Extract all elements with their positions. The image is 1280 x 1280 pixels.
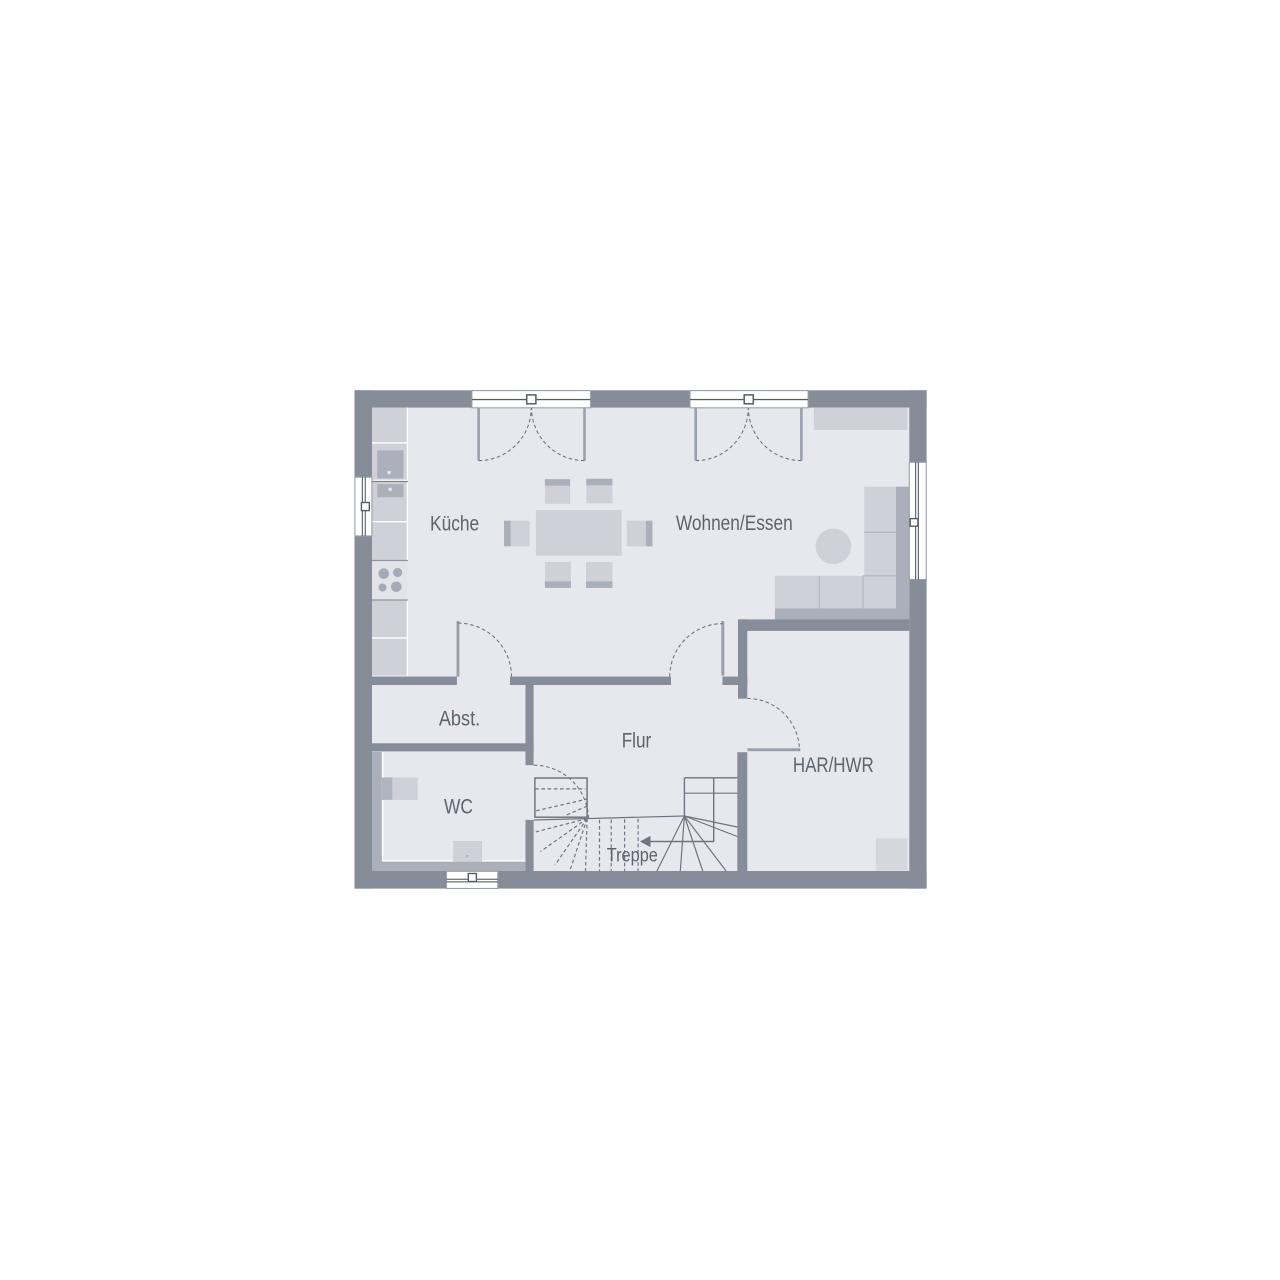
svg-text:HAR/HWR: HAR/HWR — [793, 754, 874, 777]
svg-text:WC: WC — [444, 796, 473, 819]
svg-text:Treppe: Treppe — [607, 846, 658, 867]
svg-text:Wohnen/Essen: Wohnen/Essen — [676, 512, 793, 535]
svg-text:Flur: Flur — [622, 730, 652, 753]
svg-text:Küche: Küche — [430, 513, 479, 536]
svg-text:Abst.: Abst. — [439, 708, 480, 731]
